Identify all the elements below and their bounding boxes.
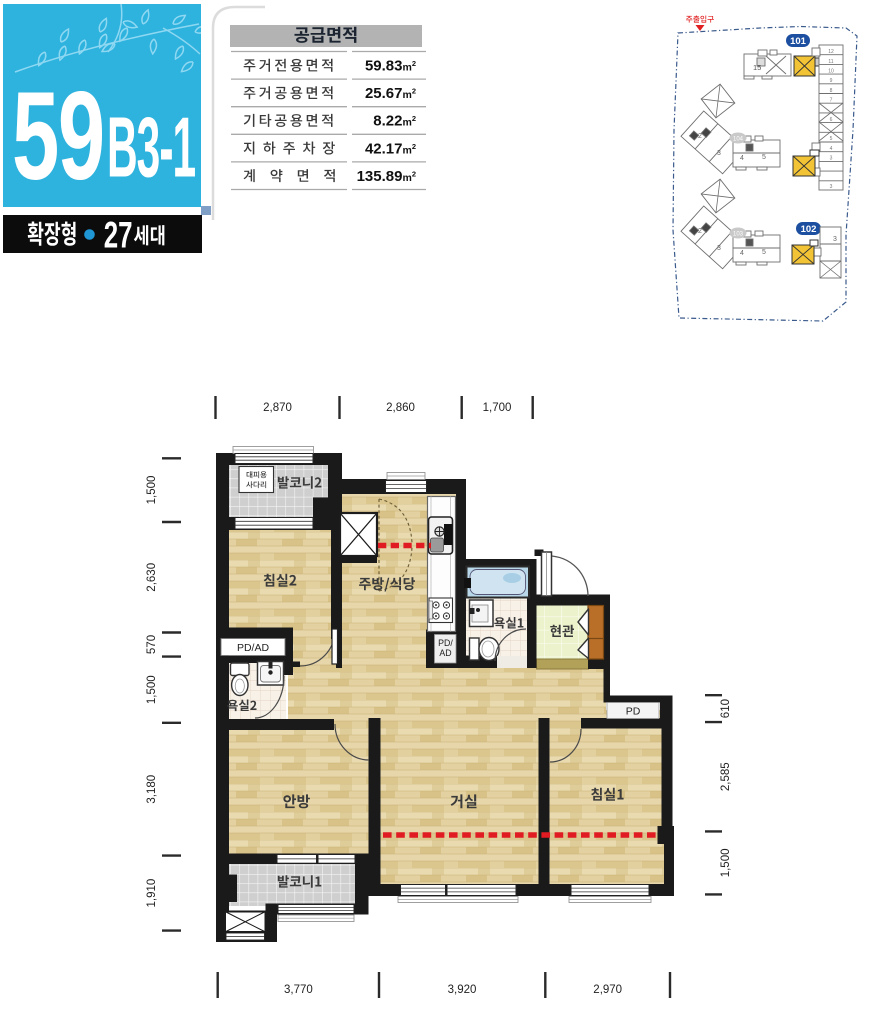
svg-text:101: 101	[790, 36, 807, 47]
svg-text:5: 5	[762, 154, 766, 161]
svg-text:3: 3	[833, 236, 837, 243]
svg-text:1,910: 1,910	[146, 879, 158, 908]
svg-text:2: 2	[698, 228, 702, 235]
svg-text:4: 4	[830, 146, 833, 152]
svg-text:2: 2	[698, 133, 702, 140]
svg-text:2,630: 2,630	[146, 563, 158, 592]
svg-text:1,500: 1,500	[146, 476, 158, 505]
svg-text:3: 3	[717, 150, 721, 157]
svg-text:104: 104	[733, 137, 744, 143]
svg-text:10: 10	[828, 69, 834, 75]
svg-text:2,870: 2,870	[263, 402, 292, 414]
svg-text:AD: AD	[439, 648, 451, 658]
svg-text:102: 102	[801, 224, 817, 235]
svg-text:610: 610	[720, 699, 732, 718]
svg-text:3: 3	[717, 245, 721, 252]
svg-text:PD/AD: PD/AD	[237, 642, 270, 654]
svg-text:PD/: PD/	[438, 638, 453, 648]
svg-text:2,860: 2,860	[386, 402, 415, 414]
svg-text:3,920: 3,920	[448, 984, 477, 996]
svg-text:6: 6	[830, 117, 833, 123]
svg-text:570: 570	[146, 635, 158, 654]
svg-text:2,970: 2,970	[593, 984, 622, 996]
svg-text:5: 5	[830, 136, 833, 142]
svg-text:7: 7	[830, 98, 833, 104]
svg-text:12: 12	[828, 49, 834, 55]
svg-text:3: 3	[830, 184, 833, 190]
svg-text:8: 8	[830, 88, 833, 94]
svg-text:11: 11	[828, 59, 833, 65]
svg-text:3: 3	[830, 156, 833, 162]
svg-text:2,585: 2,585	[720, 762, 732, 791]
svg-text:1,500: 1,500	[720, 849, 732, 878]
svg-text:5: 5	[762, 249, 766, 256]
svg-text:15: 15	[753, 63, 761, 72]
svg-text:PD: PD	[626, 706, 641, 718]
svg-text:103: 103	[733, 232, 744, 238]
svg-text:1,700: 1,700	[483, 402, 512, 414]
svg-text:1,500: 1,500	[146, 675, 158, 704]
svg-text:4: 4	[740, 250, 744, 257]
svg-text:3,770: 3,770	[284, 984, 313, 996]
svg-text:9: 9	[830, 78, 833, 84]
svg-text:3,180: 3,180	[146, 775, 158, 804]
svg-text:4: 4	[740, 155, 744, 162]
